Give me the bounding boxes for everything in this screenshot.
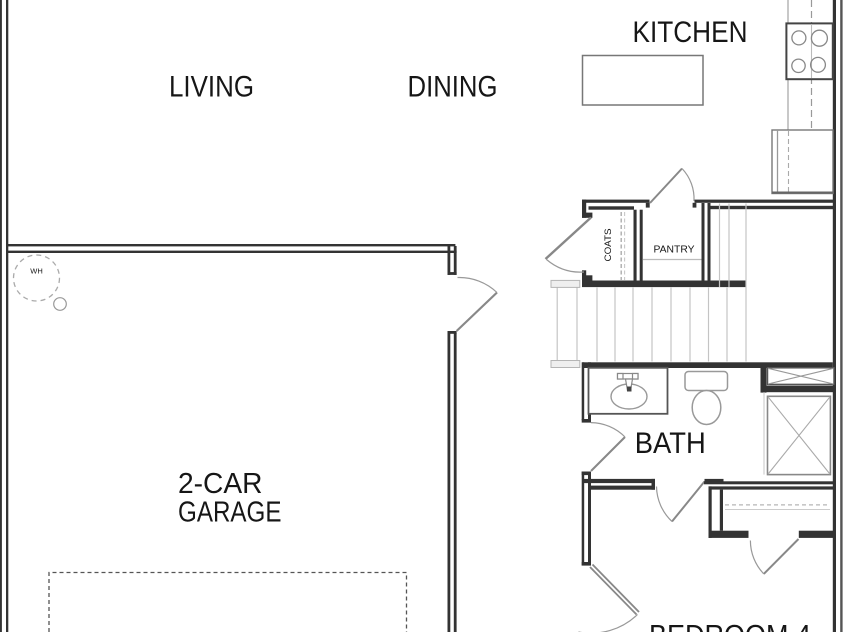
svg-text:2-CAR: 2-CAR — [178, 468, 263, 500]
svg-text:DINING: DINING — [408, 71, 498, 104]
svg-text:BEDROOM 4: BEDROOM 4 — [649, 620, 811, 632]
svg-text:COATS: COATS — [603, 229, 614, 262]
svg-text:KITCHEN: KITCHEN — [633, 16, 748, 49]
svg-text:LIVING: LIVING — [169, 71, 254, 104]
svg-text:GARAGE: GARAGE — [178, 496, 282, 528]
svg-text:WH: WH — [30, 267, 43, 276]
svg-text:BATH: BATH — [635, 427, 706, 460]
svg-text:PANTRY: PANTRY — [654, 245, 695, 256]
